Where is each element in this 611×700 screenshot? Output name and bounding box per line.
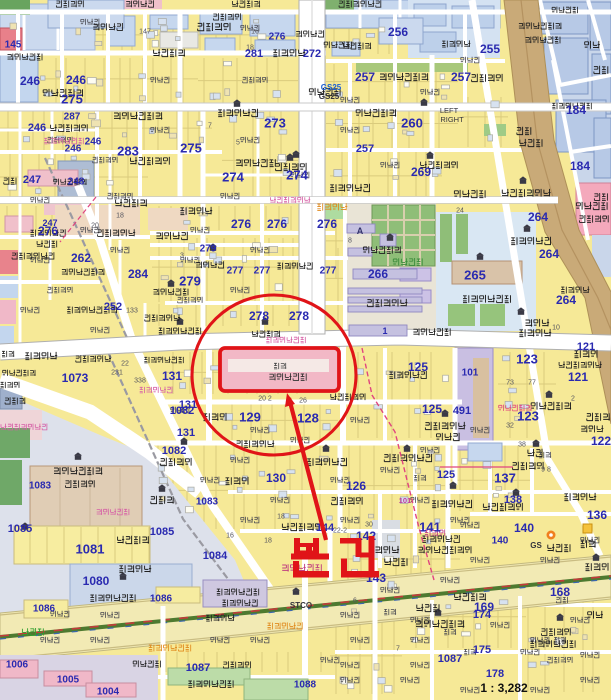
svg-text:18: 18 (277, 514, 285, 521)
svg-text:184: 184 (570, 159, 590, 173)
svg-text:125: 125 (408, 360, 428, 374)
svg-text:147: 147 (139, 29, 151, 36)
svg-text:273: 273 (264, 116, 286, 131)
svg-text:125: 125 (422, 402, 442, 416)
svg-text:136: 136 (587, 508, 607, 522)
svg-text:168: 168 (550, 585, 570, 599)
svg-text:255: 255 (480, 42, 500, 56)
svg-text:257: 257 (451, 70, 471, 84)
svg-text:RIGHT: RIGHT (440, 115, 464, 124)
svg-text:18: 18 (264, 538, 272, 545)
svg-text:18: 18 (116, 213, 124, 220)
svg-text:101: 101 (462, 368, 479, 379)
svg-text:121: 121 (568, 370, 588, 384)
svg-text:73: 73 (506, 380, 514, 387)
svg-text:22-2: 22-2 (333, 528, 347, 535)
svg-text:276: 276 (38, 224, 58, 238)
svg-text:275: 275 (180, 141, 202, 156)
svg-text:1088: 1088 (294, 680, 317, 691)
svg-text:20: 20 (91, 223, 99, 230)
svg-text:24: 24 (456, 208, 464, 215)
svg-text:22: 22 (121, 361, 129, 368)
svg-text:269: 269 (411, 165, 431, 179)
svg-text:3: 3 (180, 253, 184, 260)
svg-text:275: 275 (61, 92, 83, 107)
svg-text:131: 131 (162, 369, 182, 383)
svg-text:1083: 1083 (196, 497, 219, 508)
svg-text:1084: 1084 (203, 550, 228, 562)
svg-text:276: 276 (317, 217, 337, 231)
svg-text:16: 16 (226, 533, 234, 540)
svg-text:133: 133 (126, 308, 138, 315)
svg-text:272: 272 (303, 48, 321, 60)
svg-text:2: 2 (571, 396, 575, 403)
svg-text:246: 246 (28, 122, 46, 134)
svg-text:141: 141 (419, 520, 441, 535)
svg-text:18: 18 (246, 45, 254, 52)
svg-text:246: 246 (65, 144, 82, 155)
svg-text:16: 16 (251, 29, 259, 36)
svg-text:7: 7 (208, 123, 212, 130)
svg-text:1086: 1086 (33, 604, 56, 615)
svg-text:248: 248 (68, 177, 85, 188)
svg-text:276: 276 (269, 32, 286, 43)
svg-text:264: 264 (528, 210, 548, 224)
svg-text:277: 277 (227, 266, 244, 277)
svg-text:247: 247 (23, 174, 41, 186)
svg-text:8: 8 (348, 238, 352, 245)
svg-text:284: 284 (128, 267, 148, 281)
svg-text:1086: 1086 (150, 594, 173, 605)
svg-text:278: 278 (249, 309, 269, 323)
svg-text:GS25: GS25 (319, 92, 340, 101)
svg-text:246: 246 (66, 73, 86, 87)
svg-text:123: 123 (517, 409, 539, 424)
svg-text:GS: GS (530, 541, 542, 550)
svg-text:20 2: 20 2 (258, 396, 272, 403)
svg-text:131: 131 (177, 427, 195, 439)
svg-text:122: 122 (591, 434, 611, 448)
svg-text:265: 265 (464, 268, 486, 283)
svg-text:A: A (357, 226, 364, 236)
svg-text:1005: 1005 (57, 675, 80, 686)
svg-text:6: 6 (353, 598, 357, 605)
svg-text:260: 260 (401, 116, 423, 131)
svg-text:264: 264 (539, 247, 559, 261)
svg-text:129: 129 (239, 410, 261, 425)
svg-text:277: 277 (320, 266, 337, 277)
svg-text:246: 246 (20, 74, 40, 88)
svg-text:121: 121 (577, 341, 595, 353)
svg-text:1085: 1085 (8, 523, 32, 535)
svg-text:137: 137 (494, 471, 516, 486)
svg-text:5: 5 (236, 140, 240, 147)
svg-text:1087: 1087 (438, 653, 462, 665)
svg-text:266: 266 (368, 267, 388, 281)
svg-text:274: 274 (222, 170, 244, 185)
svg-text:287: 287 (64, 112, 81, 123)
svg-text:279: 279 (179, 274, 201, 289)
svg-text:77: 77 (528, 380, 536, 387)
svg-text:175: 175 (473, 644, 491, 656)
svg-text:274: 274 (286, 168, 308, 183)
svg-text:276: 276 (231, 217, 251, 231)
svg-text:32: 32 (506, 423, 514, 430)
svg-text:145: 145 (5, 40, 22, 51)
svg-text:140: 140 (514, 521, 534, 535)
svg-text:STCO: STCO (290, 601, 312, 610)
svg-text:1082: 1082 (162, 445, 186, 457)
svg-text:231: 231 (111, 370, 123, 377)
svg-text:256: 256 (388, 25, 408, 39)
svg-text:1082: 1082 (170, 405, 194, 417)
svg-text:10: 10 (552, 325, 560, 332)
svg-text:1006: 1006 (6, 660, 29, 671)
svg-text:257: 257 (355, 70, 375, 84)
svg-text:279: 279 (200, 244, 217, 255)
svg-text:1083: 1083 (29, 481, 52, 492)
svg-text:278: 278 (289, 309, 309, 323)
svg-text:30: 30 (365, 522, 373, 529)
svg-text:283: 283 (117, 144, 139, 159)
svg-text:1080: 1080 (83, 574, 110, 588)
svg-text:1081: 1081 (76, 542, 105, 557)
svg-text:7: 7 (396, 646, 400, 653)
svg-text:1: 1 (382, 326, 387, 336)
svg-text:1085: 1085 (150, 526, 174, 538)
svg-text:1004: 1004 (97, 687, 120, 698)
svg-text:138: 138 (504, 494, 522, 506)
svg-text:491: 491 (453, 405, 471, 417)
svg-text:252: 252 (104, 301, 122, 313)
svg-text:246: 246 (85, 137, 102, 148)
svg-text:1073: 1073 (62, 371, 89, 385)
svg-text:GS25: GS25 (321, 83, 342, 92)
svg-text:101: 101 (399, 496, 412, 505)
svg-text:338: 338 (134, 378, 146, 385)
svg-text:257: 257 (356, 143, 374, 155)
svg-text:128: 128 (297, 411, 319, 426)
svg-text:123: 123 (516, 352, 538, 367)
svg-text:1 : 3,282: 1 : 3,282 (480, 681, 528, 695)
svg-text:178: 178 (486, 668, 504, 680)
svg-text:276: 276 (267, 217, 287, 231)
svg-text:9 8: 9 8 (541, 467, 551, 474)
svg-text:130: 130 (266, 471, 286, 485)
svg-text:264: 264 (556, 293, 576, 307)
svg-text:26: 26 (299, 398, 307, 405)
svg-text:140: 140 (492, 536, 509, 547)
svg-text:174: 174 (473, 609, 492, 621)
svg-text:LEFT: LEFT (440, 106, 459, 115)
svg-text:184: 184 (566, 103, 586, 117)
svg-text:277: 277 (254, 266, 271, 277)
svg-text:1087: 1087 (186, 662, 210, 674)
svg-text:125: 125 (437, 469, 455, 481)
svg-text:126: 126 (346, 479, 366, 493)
svg-text:262: 262 (71, 251, 91, 265)
svg-text:38: 38 (518, 442, 526, 449)
